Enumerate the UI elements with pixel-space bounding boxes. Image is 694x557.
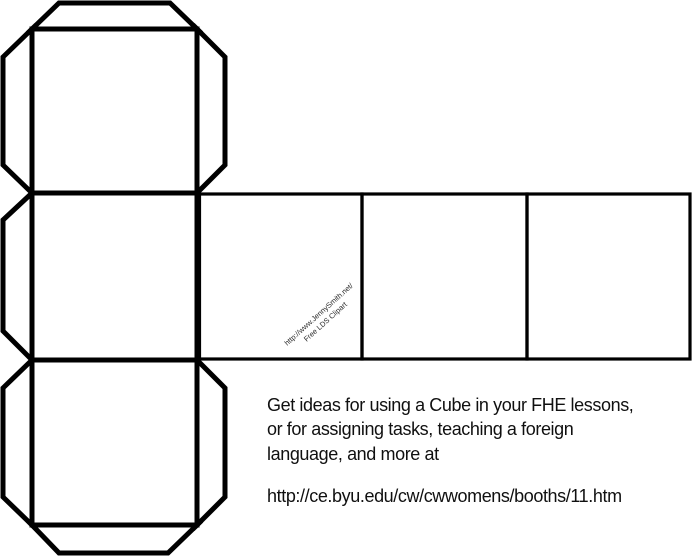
- glue-flap-bottom-left: [3, 360, 32, 525]
- glue-flap-top-right: [197, 29, 225, 193]
- caption-url: http://ce.byu.edu/cw/cwwomens/booths/11.…: [267, 484, 633, 508]
- glue-flap-middle-left: [3, 193, 32, 360]
- cube-face-middle-left: [32, 193, 197, 360]
- cube-face-middle-2: [200, 194, 363, 359]
- glue-flap-bottom-right: [197, 360, 225, 525]
- caption-spacer: [267, 466, 633, 484]
- cube-face-middle-4: [527, 194, 690, 359]
- glue-flap-top-left: [3, 29, 32, 193]
- cube-template-page: http://www.JennySmith.net/ Free LDS Clip…: [0, 0, 694, 557]
- glue-flap-top: [32, 3, 197, 29]
- caption-line-2: or for assigning tasks, teaching a forei…: [267, 417, 633, 441]
- glue-flap-bottom: [32, 525, 197, 553]
- cube-face-middle-3: [362, 194, 527, 359]
- cube-face-top: [32, 29, 197, 193]
- caption-block: Get ideas for using a Cube in your FHE l…: [267, 393, 633, 508]
- caption-line-3: language, and more at: [267, 442, 633, 466]
- caption-line-1: Get ideas for using a Cube in your FHE l…: [267, 393, 633, 417]
- cube-face-bottom: [32, 360, 197, 525]
